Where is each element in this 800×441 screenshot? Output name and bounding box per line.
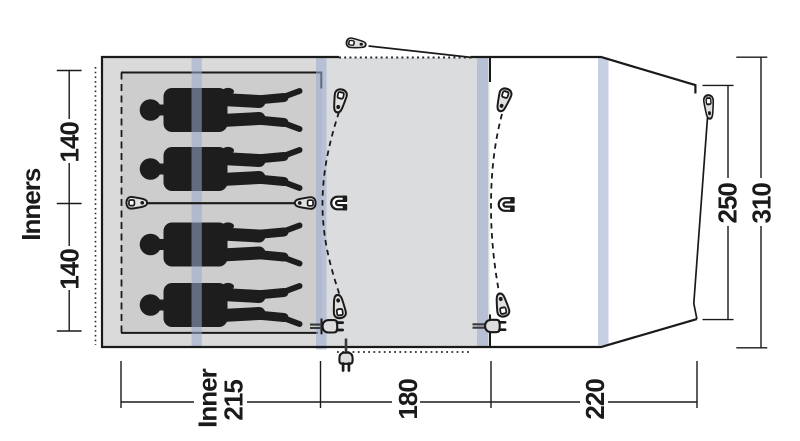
svg-text:310: 310 — [746, 183, 776, 224]
svg-text:180: 180 — [393, 379, 423, 420]
svg-text:250: 250 — [713, 183, 743, 224]
svg-text:Inners: Inners — [16, 168, 46, 241]
svg-text:140: 140 — [54, 249, 84, 290]
svg-text:140: 140 — [54, 122, 84, 163]
svg-text:215: 215 — [219, 380, 249, 421]
svg-text:220: 220 — [580, 379, 610, 420]
